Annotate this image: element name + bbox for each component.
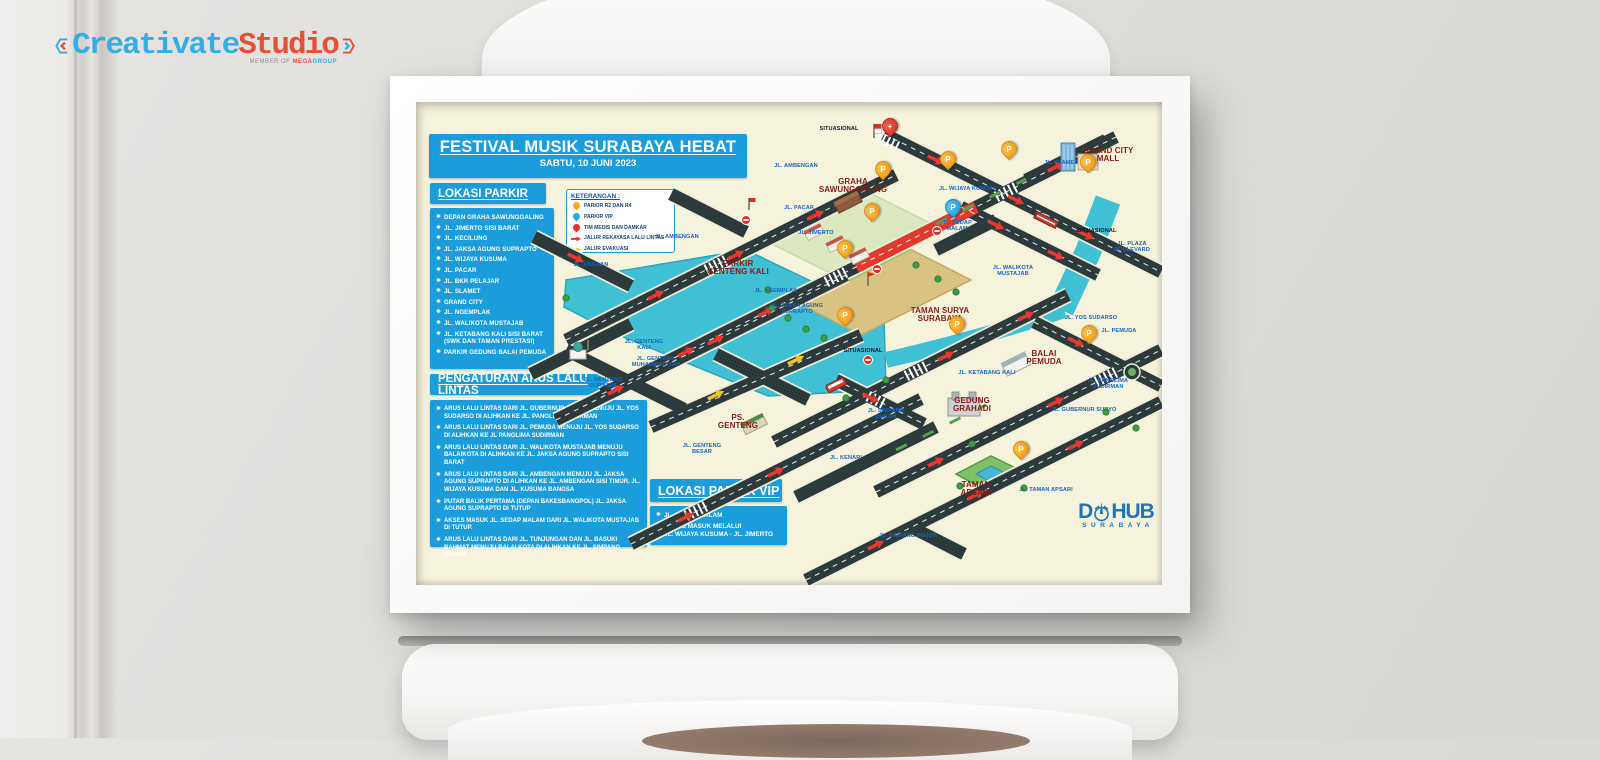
parking-pin-icon: P [861,200,884,223]
parking-pin-icon: P [998,138,1021,161]
parking-pin-icon: P [872,158,895,181]
toilet-tank-lid-back [482,0,1110,80]
parking-pin-icon: P [1077,151,1100,174]
map-pins: PPPPPPPPPPP+ [416,102,1162,585]
parking-pin-icon: + [879,115,902,138]
parking-pin-icon: P [1078,322,1101,345]
door-molding [0,0,118,738]
chevron-left-icon [55,29,68,63]
parking-pin-icon: P [1010,438,1033,461]
event-map-poster: FESTIVAL MUSIK SURABAYA HEBAT SABTU, 10 … [416,102,1162,585]
parking-pin-icon: P [937,148,960,171]
creativate-studio-logo: CreativateStudio MEMBER OF MEGAGROUP [55,28,355,92]
parking-pin-icon: P [946,313,969,336]
parking-pin-icon: P [834,237,857,260]
parking-pin-icon: P [942,196,965,219]
picture-frame: FESTIVAL MUSIK SURABAYA HEBAT SABTU, 10 … [390,76,1190,613]
molding-shadow-line [74,0,77,738]
toilet-seat-opening [642,724,1030,758]
chevron-right-icon [342,29,355,63]
parking-pin-icon: P [834,304,857,327]
studio-wordmark: CreativateStudio [72,28,338,63]
